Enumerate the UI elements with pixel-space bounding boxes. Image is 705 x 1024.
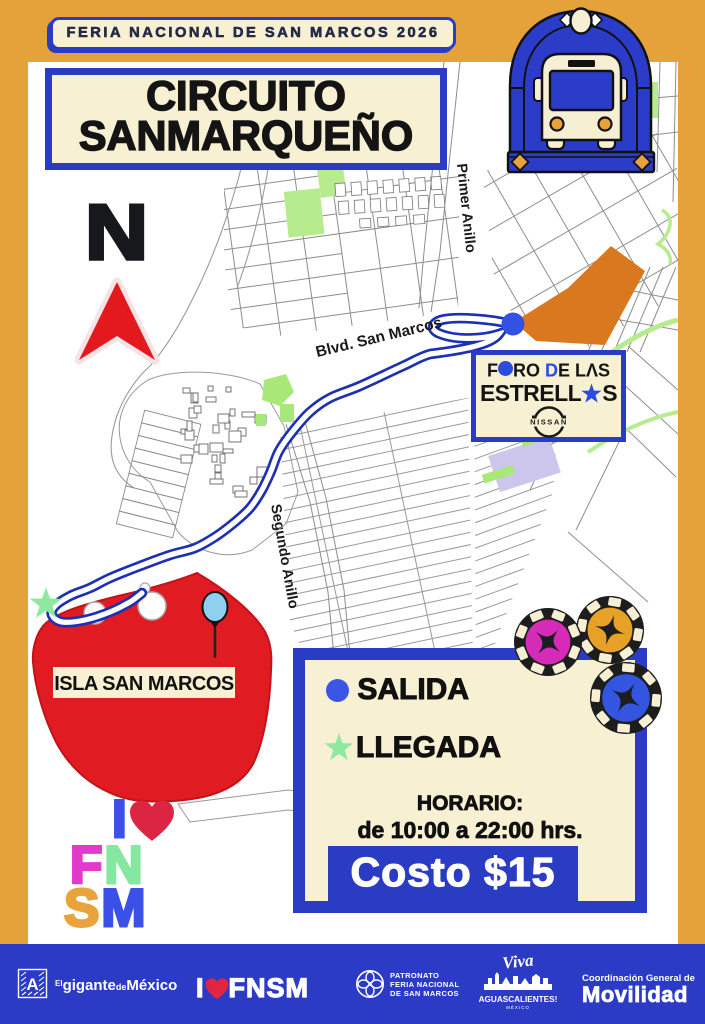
svg-text:A: A xyxy=(26,975,38,994)
svg-text:Primer Anillo: Primer Anillo xyxy=(453,163,478,254)
svg-text:Segundo Anillo: Segundo Anillo xyxy=(267,503,301,610)
svg-text:NISSAN: NISSAN xyxy=(530,417,568,426)
svg-text:ISLA SAN MARCOS: ISLA SAN MARCOS xyxy=(54,673,234,695)
